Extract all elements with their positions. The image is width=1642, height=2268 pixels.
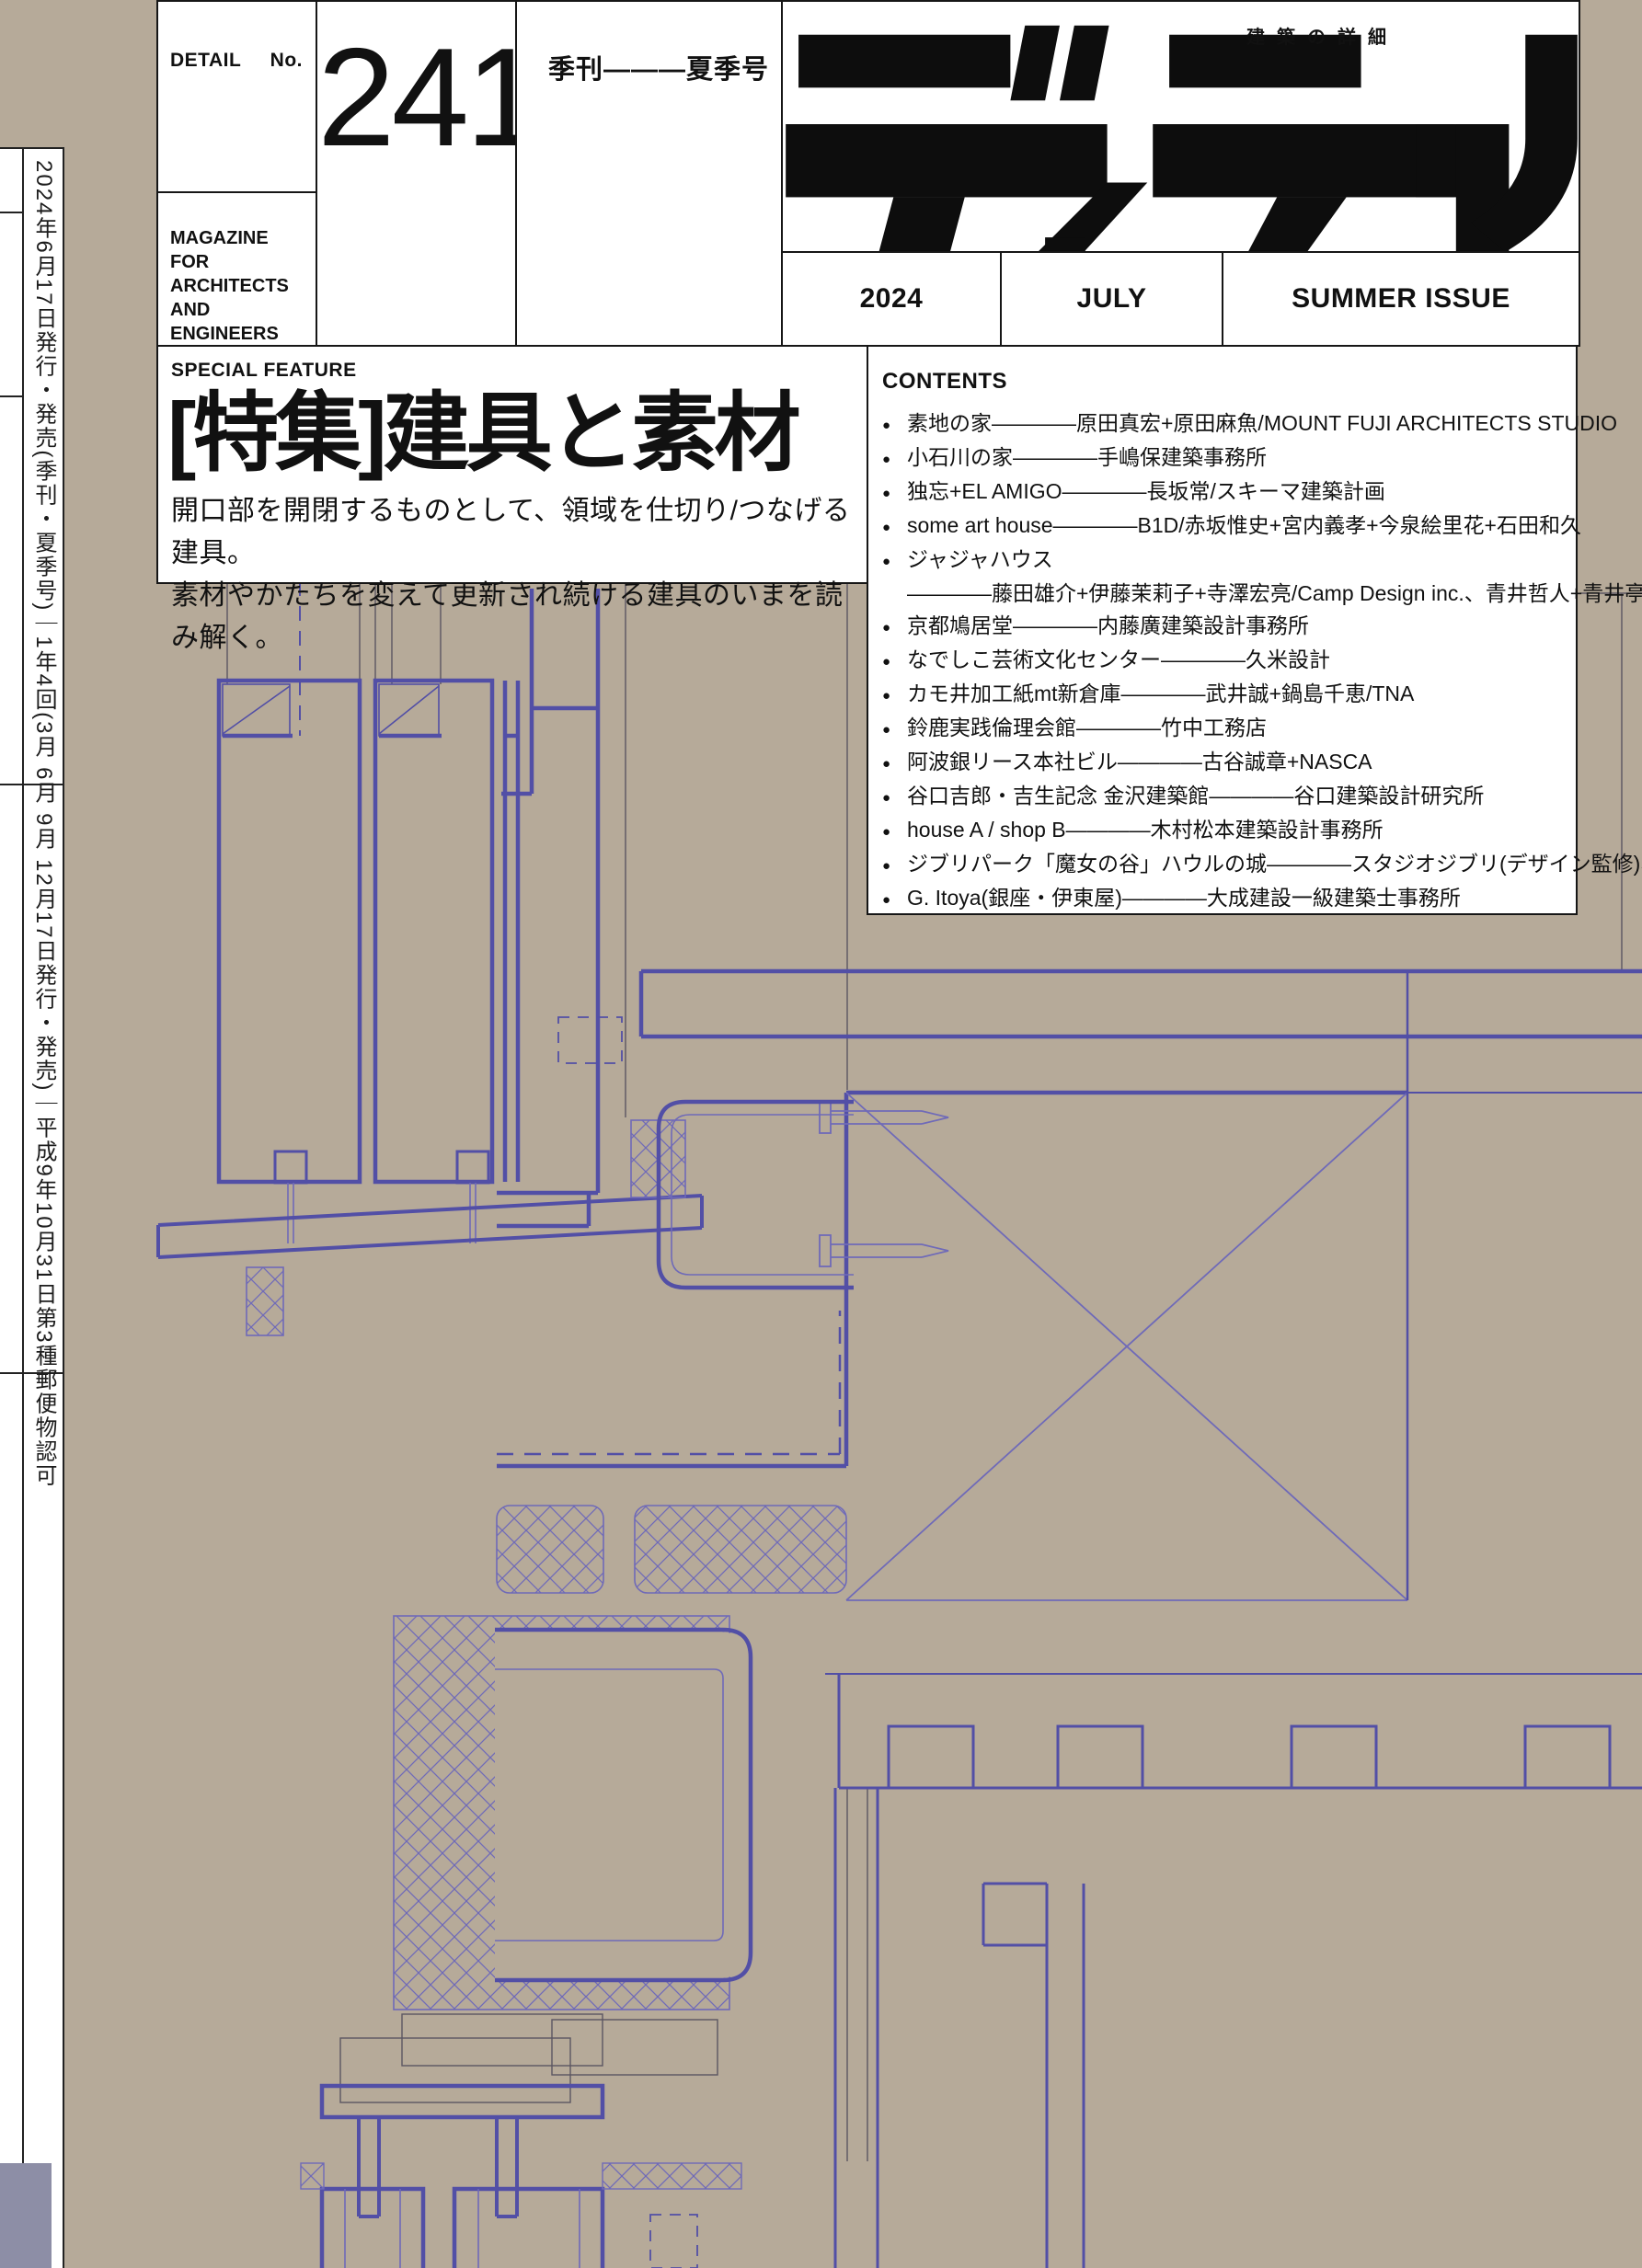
bullet-icon: ● (882, 612, 907, 644)
feature-desc-line2: 素材やかたちを変えて更新され続ける建具のいまを読み解く。 (171, 575, 867, 659)
contents-item: ●なでしこ芸術文化センター————久米設計 (882, 644, 1567, 678)
contents-item: ●カモ井加工紙mt新倉庫————武井誠+鍋島千恵/TNA (882, 678, 1567, 712)
insulation-strip (497, 1506, 603, 1593)
contents-item: ●some art house————B1D/赤坂惟史+宮内義孝+今泉絵里花+石… (882, 510, 1567, 544)
feature-title: [特集]建具と素材 (158, 382, 867, 479)
year-cell: 2024 (781, 251, 1002, 347)
feature-desc-line1: 開口部を開閉するものとして、領域を仕切り/つなげる建具。 (171, 490, 867, 575)
magazine-for-text: MAGAZINE FOR ARCHITECTS AND ENGINEERS (158, 193, 316, 346)
hatch-packer (603, 2163, 741, 2189)
bullet-icon: ● (882, 443, 907, 475)
season-cell: SUMMER ISSUE (1222, 251, 1580, 347)
logo-subtitle: 建築の詳細 (1246, 22, 1398, 49)
contents-item-text: ————藤田雄介+伊藤茉莉子+寺澤宏亮/Camp Design inc.、青井哲… (907, 581, 1642, 605)
dashed-boundary (497, 1311, 840, 1454)
dashed-detail-box (650, 2215, 697, 2268)
bullet-icon: ● (882, 816, 907, 848)
bullet-icon: ● (882, 477, 907, 510)
x-brace-panel (846, 971, 1407, 1600)
issue-number: 241 (317, 2, 515, 167)
publication-info: 2024年6月17日発行・発売(季刊・夏季号)｜1年4回(3月 6月 9月 12… (28, 160, 60, 1488)
contents-item-text: some art house————B1D/赤坂惟史+宮内義孝+今泉絵里花+石田… (907, 513, 1581, 537)
insulation-block (394, 1616, 751, 2010)
magazine-for-box: MAGAZINE FOR ARCHITECTS AND ENGINEERS (156, 191, 317, 347)
hatch-packer (301, 2163, 324, 2189)
logo-box: 建築の詳細 ディテール (781, 0, 1580, 253)
bullet-icon: ● (882, 884, 907, 916)
mullion-rail (825, 1674, 1642, 2268)
contents-item: ●G. Itoya(銀座・伊東屋)————大成建設一級建築士事務所 (882, 882, 1567, 916)
bullet-icon: ● (882, 409, 907, 441)
hatch-packer (247, 1267, 283, 1335)
bullet-icon: ● (882, 782, 907, 814)
detail-no-box: DETAIL No. (156, 0, 317, 193)
contents-item: ●小石川の家————手嶋保建築事務所 (882, 441, 1567, 475)
contents-item-text: なでしこ芸術文化センター————久米設計 (907, 647, 1330, 671)
quarterly-box: 季刊———夏季号 (515, 0, 783, 347)
contents-item: ●素地の家————原田真宏+原田麻魚/MOUNT FUJI ARCHITECTS… (882, 407, 1567, 441)
sidebar-color-block (0, 2163, 52, 2268)
quarterly-label: 季刊———夏季号 (517, 2, 781, 86)
no-label: No. (270, 50, 303, 72)
contents-item-text: 小石川の家————手嶋保建築事務所 (907, 445, 1267, 469)
issue-number-box: 241 (316, 0, 517, 347)
sidebar-divider (0, 395, 23, 397)
contents-item-text: G. Itoya(銀座・伊東屋)————大成建設一級建築士事務所 (907, 886, 1461, 910)
contents-item-text: ジャジャハウス (907, 547, 1053, 571)
sill-bar (158, 1196, 702, 1257)
bullet-icon: ● (882, 545, 907, 578)
contents-box: CONTENTS ●素地の家————原田真宏+原田麻魚/MOUNT FUJI A… (867, 345, 1578, 915)
special-feature-box: SPECIAL FEATURE [特集]建具と素材 開口部を開閉するものとして、… (156, 345, 868, 584)
month-cell: JULY (1000, 251, 1223, 347)
slab-bands (497, 971, 1642, 1466)
month-label: JULY (1077, 283, 1147, 315)
contents-item: ●阿波銀リース本社ビル————古谷誠章+NASCA (882, 746, 1567, 780)
contents-item: ●独忘+EL AMIGO————長坂常/スキーマ建築計画 (882, 475, 1567, 510)
detail-label: DETAIL (170, 50, 241, 72)
year-label: 2024 (860, 283, 924, 315)
bullet-icon: ● (882, 511, 907, 544)
detail-logo-icon (783, 2, 1580, 251)
contents-item: ●谷口吉郎・吉生記念 金沢建築館————谷口建築設計研究所 (882, 780, 1567, 814)
season-label: SUMMER ISSUE (1292, 283, 1510, 315)
bullet-icon: ● (882, 714, 907, 746)
contents-item-text: 鈴鹿実践倫理会館————竹中工務店 (907, 716, 1267, 739)
bullet-icon: ● (882, 646, 907, 678)
contents-item: ————藤田雄介+伊藤茉莉子+寺澤宏亮/Camp Design inc.、青井哲… (882, 578, 1567, 610)
contents-label: CONTENTS (868, 347, 1576, 395)
contents-item-text: 谷口吉郎・吉生記念 金沢建築館————谷口建築設計研究所 (907, 784, 1484, 808)
sidebar-divider (22, 149, 24, 2163)
bullet-icon: ● (882, 680, 907, 712)
special-feature-label: SPECIAL FEATURE (158, 347, 867, 382)
bullet-icon: ● (882, 850, 907, 882)
contents-item-text: 阿波銀リース本社ビル————古谷誠章+NASCA (907, 750, 1372, 773)
contents-item-text: house A / shop B————木村松本建築設計事務所 (907, 818, 1384, 842)
contents-list: ●素地の家————原田真宏+原田麻魚/MOUNT FUJI ARCHITECTS… (868, 407, 1576, 916)
bullet-icon: ● (882, 748, 907, 780)
contents-item-text: 素地の家————原田真宏+原田麻魚/MOUNT FUJI ARCHITECTS … (907, 411, 1617, 435)
contents-item: ●ジャジャハウス (882, 544, 1567, 578)
contents-item-text: 京都鳩居堂————内藤廣建築設計事務所 (907, 613, 1309, 637)
contents-item: ●ジブリパーク「魔女の谷」ハウルの城————スタジオジブリ(デザイン監修)、日本… (882, 848, 1567, 882)
contents-item-text: カモ井加工紙mt新倉庫————武井誠+鍋島千恵/TNA (907, 682, 1414, 705)
anchor-bolts (275, 1151, 488, 1243)
contents-item-text: ジブリパーク「魔女の谷」ハウルの城————スタジオジブリ(デザイン監修)、日本設… (907, 852, 1642, 876)
bottom-frame (322, 2086, 603, 2268)
dashed-detail-box (558, 1017, 622, 1063)
contents-item: ●京都鳩居堂————内藤廣建築設計事務所 (882, 610, 1567, 644)
contents-item: ●house A / shop B————木村松本建築設計事務所 (882, 814, 1567, 848)
mullion-posts (219, 589, 598, 1226)
contents-item-text: 独忘+EL AMIGO————長坂常/スキーマ建築計画 (907, 479, 1385, 503)
sidebar-divider (0, 212, 23, 213)
contents-item: ●鈴鹿実践倫理会館————竹中工務店 (882, 712, 1567, 746)
insulation-strip (635, 1506, 846, 1593)
